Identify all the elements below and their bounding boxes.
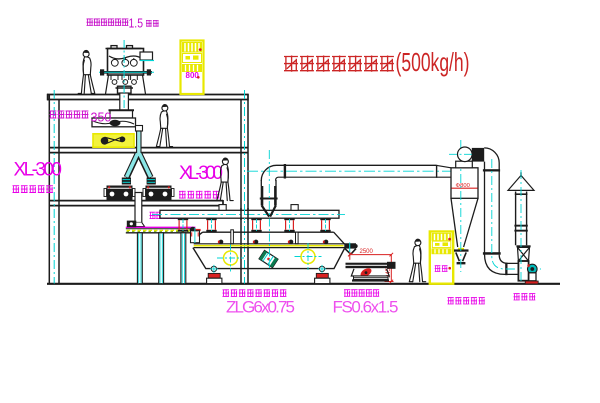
svg-text:XL-300: XL-300 xyxy=(179,163,223,184)
svg-text:2500: 2500 xyxy=(360,249,374,255)
svg-text:350: 350 xyxy=(91,111,112,125)
svg-text:ZLG6x0.75: ZLG6x0.75 xyxy=(226,298,295,317)
svg-text:XL-300: XL-300 xyxy=(14,160,63,181)
svg-text:800: 800 xyxy=(186,71,200,80)
svg-text:(500kg/h): (500kg/h) xyxy=(396,47,470,77)
svg-text:FS0.6x1.5: FS0.6x1.5 xyxy=(333,298,399,317)
svg-text:Φ800: Φ800 xyxy=(456,183,470,189)
svg-text:1.5: 1.5 xyxy=(129,17,144,31)
